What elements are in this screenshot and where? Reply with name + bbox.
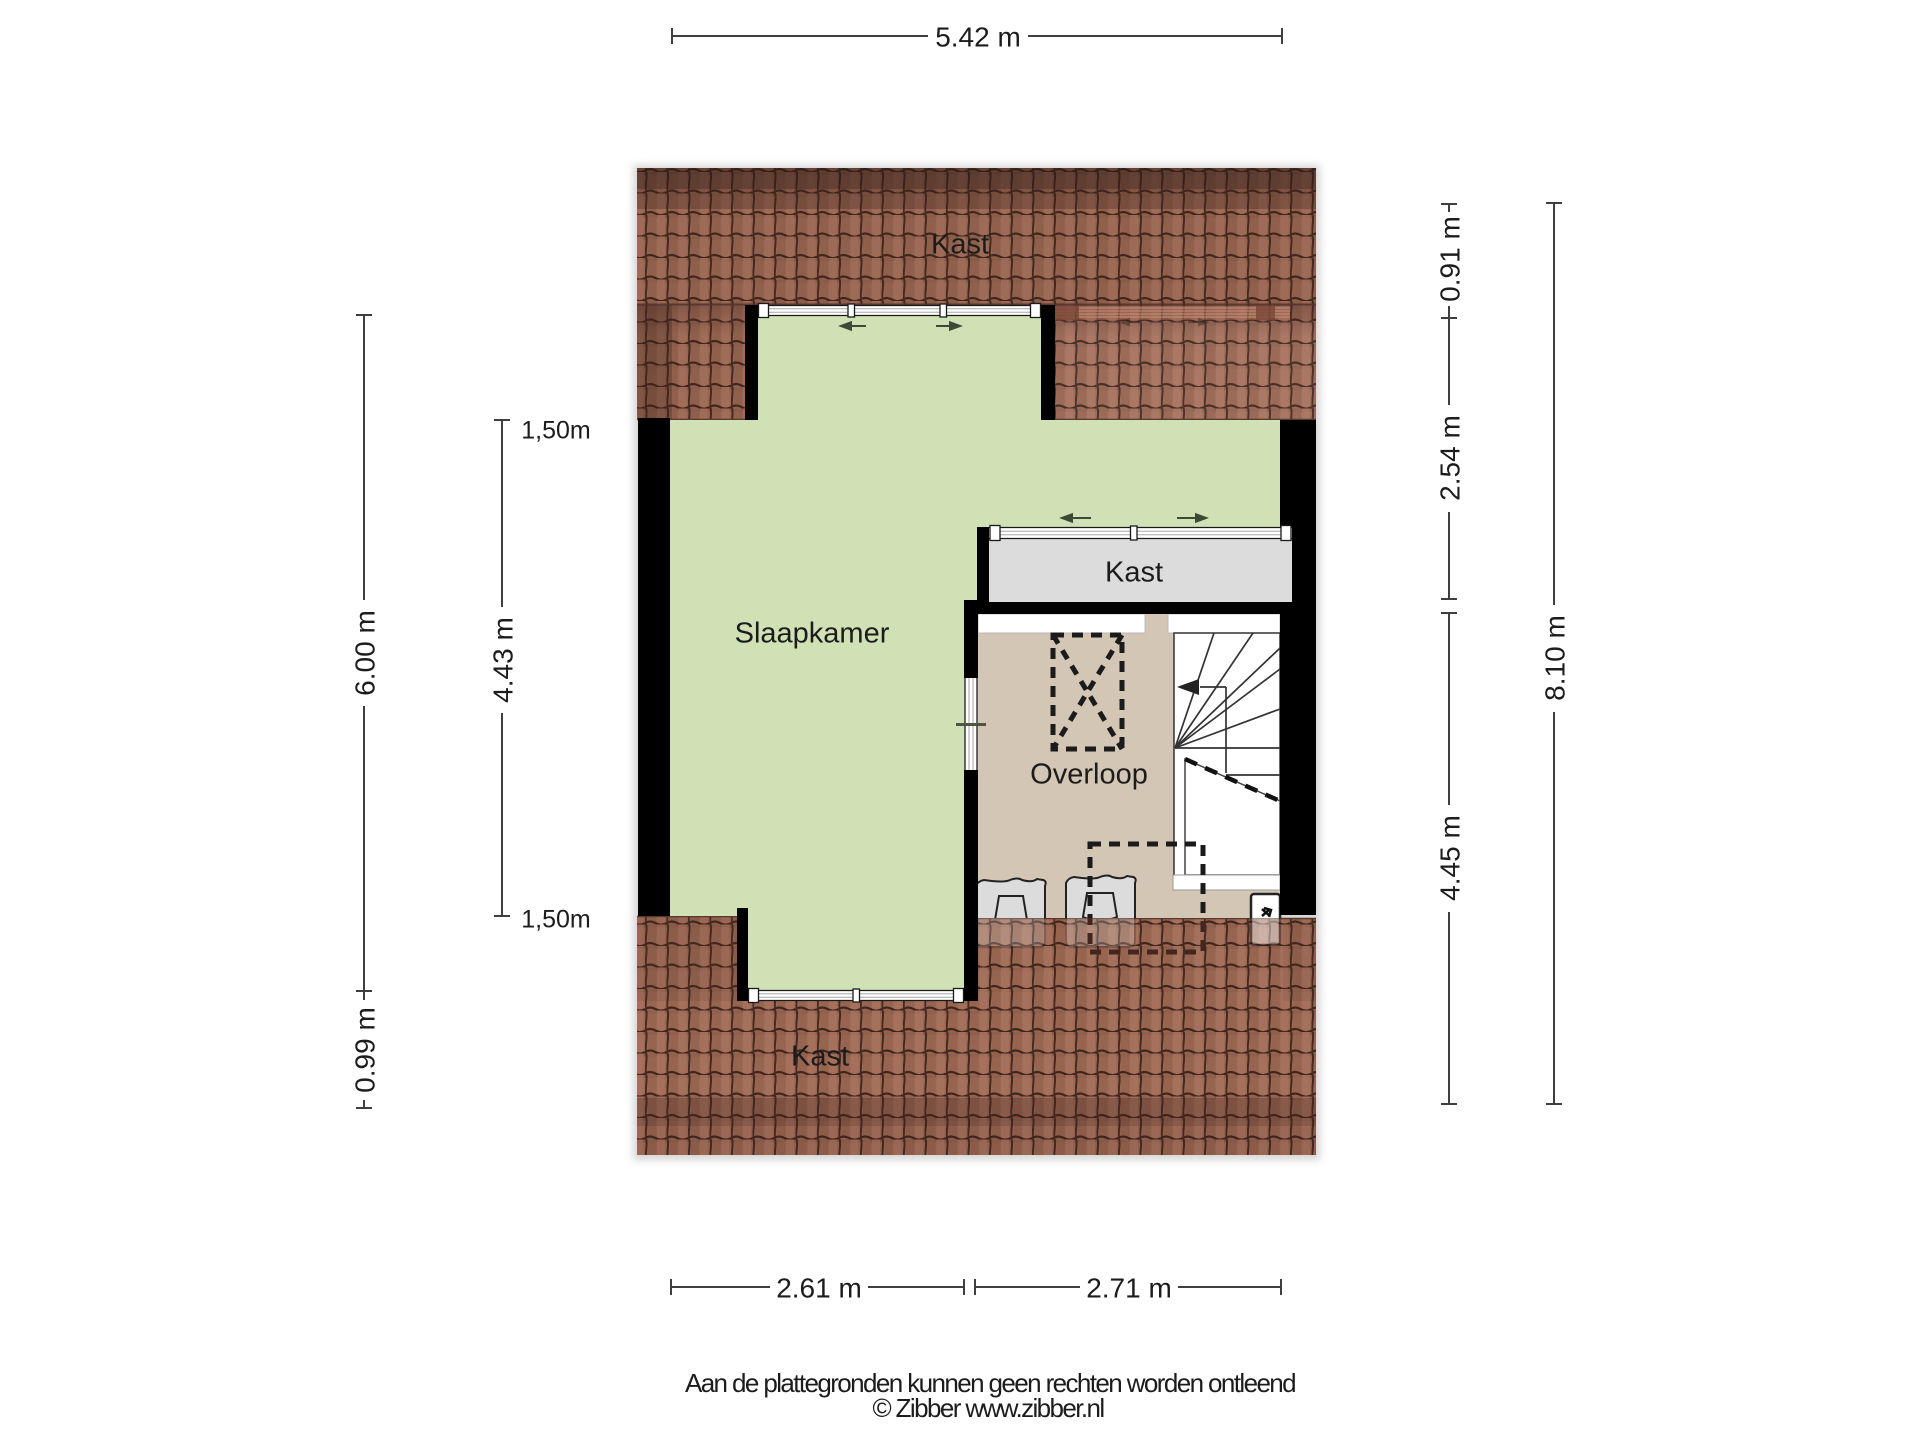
svg-text:Slaapkamer: Slaapkamer: [735, 618, 890, 650]
svg-text:2.54 m: 2.54 m: [1435, 415, 1466, 501]
svg-text:© Zibber www.zibber.nl: © Zibber www.zibber.nl: [872, 1393, 1104, 1423]
svg-text:6.00 m: 6.00 m: [350, 610, 381, 696]
svg-text:4.43 m: 4.43 m: [488, 617, 519, 703]
svg-text:2.71 m: 2.71 m: [1086, 1273, 1172, 1304]
svg-text:Overloop: Overloop: [1030, 759, 1148, 791]
svg-text:Kast: Kast: [1105, 557, 1163, 589]
svg-text:4.45 m: 4.45 m: [1435, 815, 1466, 901]
svg-text:2.61 m: 2.61 m: [776, 1273, 862, 1304]
svg-text:1,50m: 1,50m: [521, 417, 590, 445]
svg-text:0.91 m: 0.91 m: [1435, 216, 1466, 302]
svg-text:Kast: Kast: [791, 1041, 849, 1073]
svg-text:5.42 m: 5.42 m: [935, 22, 1021, 53]
svg-text:1,50m: 1,50m: [521, 906, 590, 934]
svg-text:0.99 m: 0.99 m: [350, 1007, 381, 1093]
svg-text:Kast: Kast: [931, 229, 989, 261]
svg-text:8.10 m: 8.10 m: [1540, 615, 1571, 701]
